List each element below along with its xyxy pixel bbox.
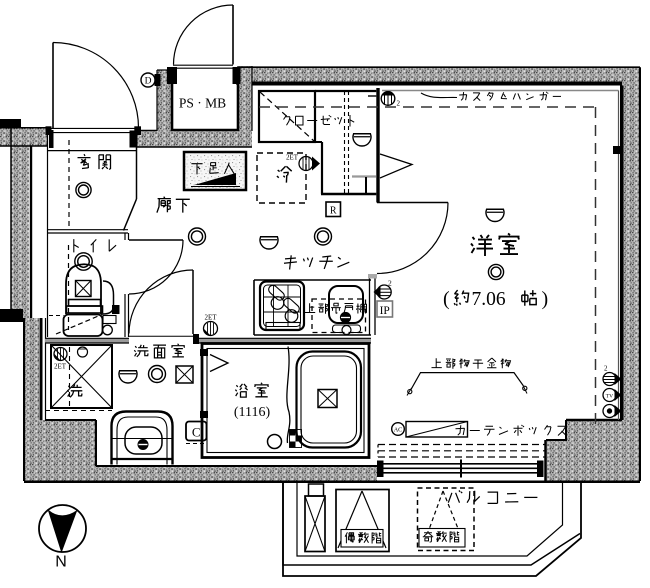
svg-text:AC: AC [394, 426, 403, 433]
svg-text:(: ( [443, 288, 450, 310]
svg-text:2: 2 [397, 100, 401, 108]
svg-text:7.06: 7.06 [472, 289, 506, 310]
svg-text:R: R [330, 206, 337, 217]
svg-text:2: 2 [388, 279, 392, 288]
svg-text:): ) [542, 288, 549, 310]
svg-text:2: 2 [604, 365, 608, 373]
svg-text:TV: TV [606, 394, 613, 400]
svg-text:PS · MB: PS · MB [179, 96, 226, 111]
svg-text:2ET: 2ET [204, 314, 217, 322]
svg-text:C: C [192, 425, 201, 440]
svg-text:D: D [145, 77, 152, 87]
svg-text:N: N [55, 554, 67, 571]
svg-text:(1116): (1116) [234, 405, 271, 420]
svg-text:2ET: 2ET [54, 363, 67, 371]
svg-text:2ET: 2ET [286, 154, 299, 162]
svg-text:IP: IP [380, 305, 390, 317]
